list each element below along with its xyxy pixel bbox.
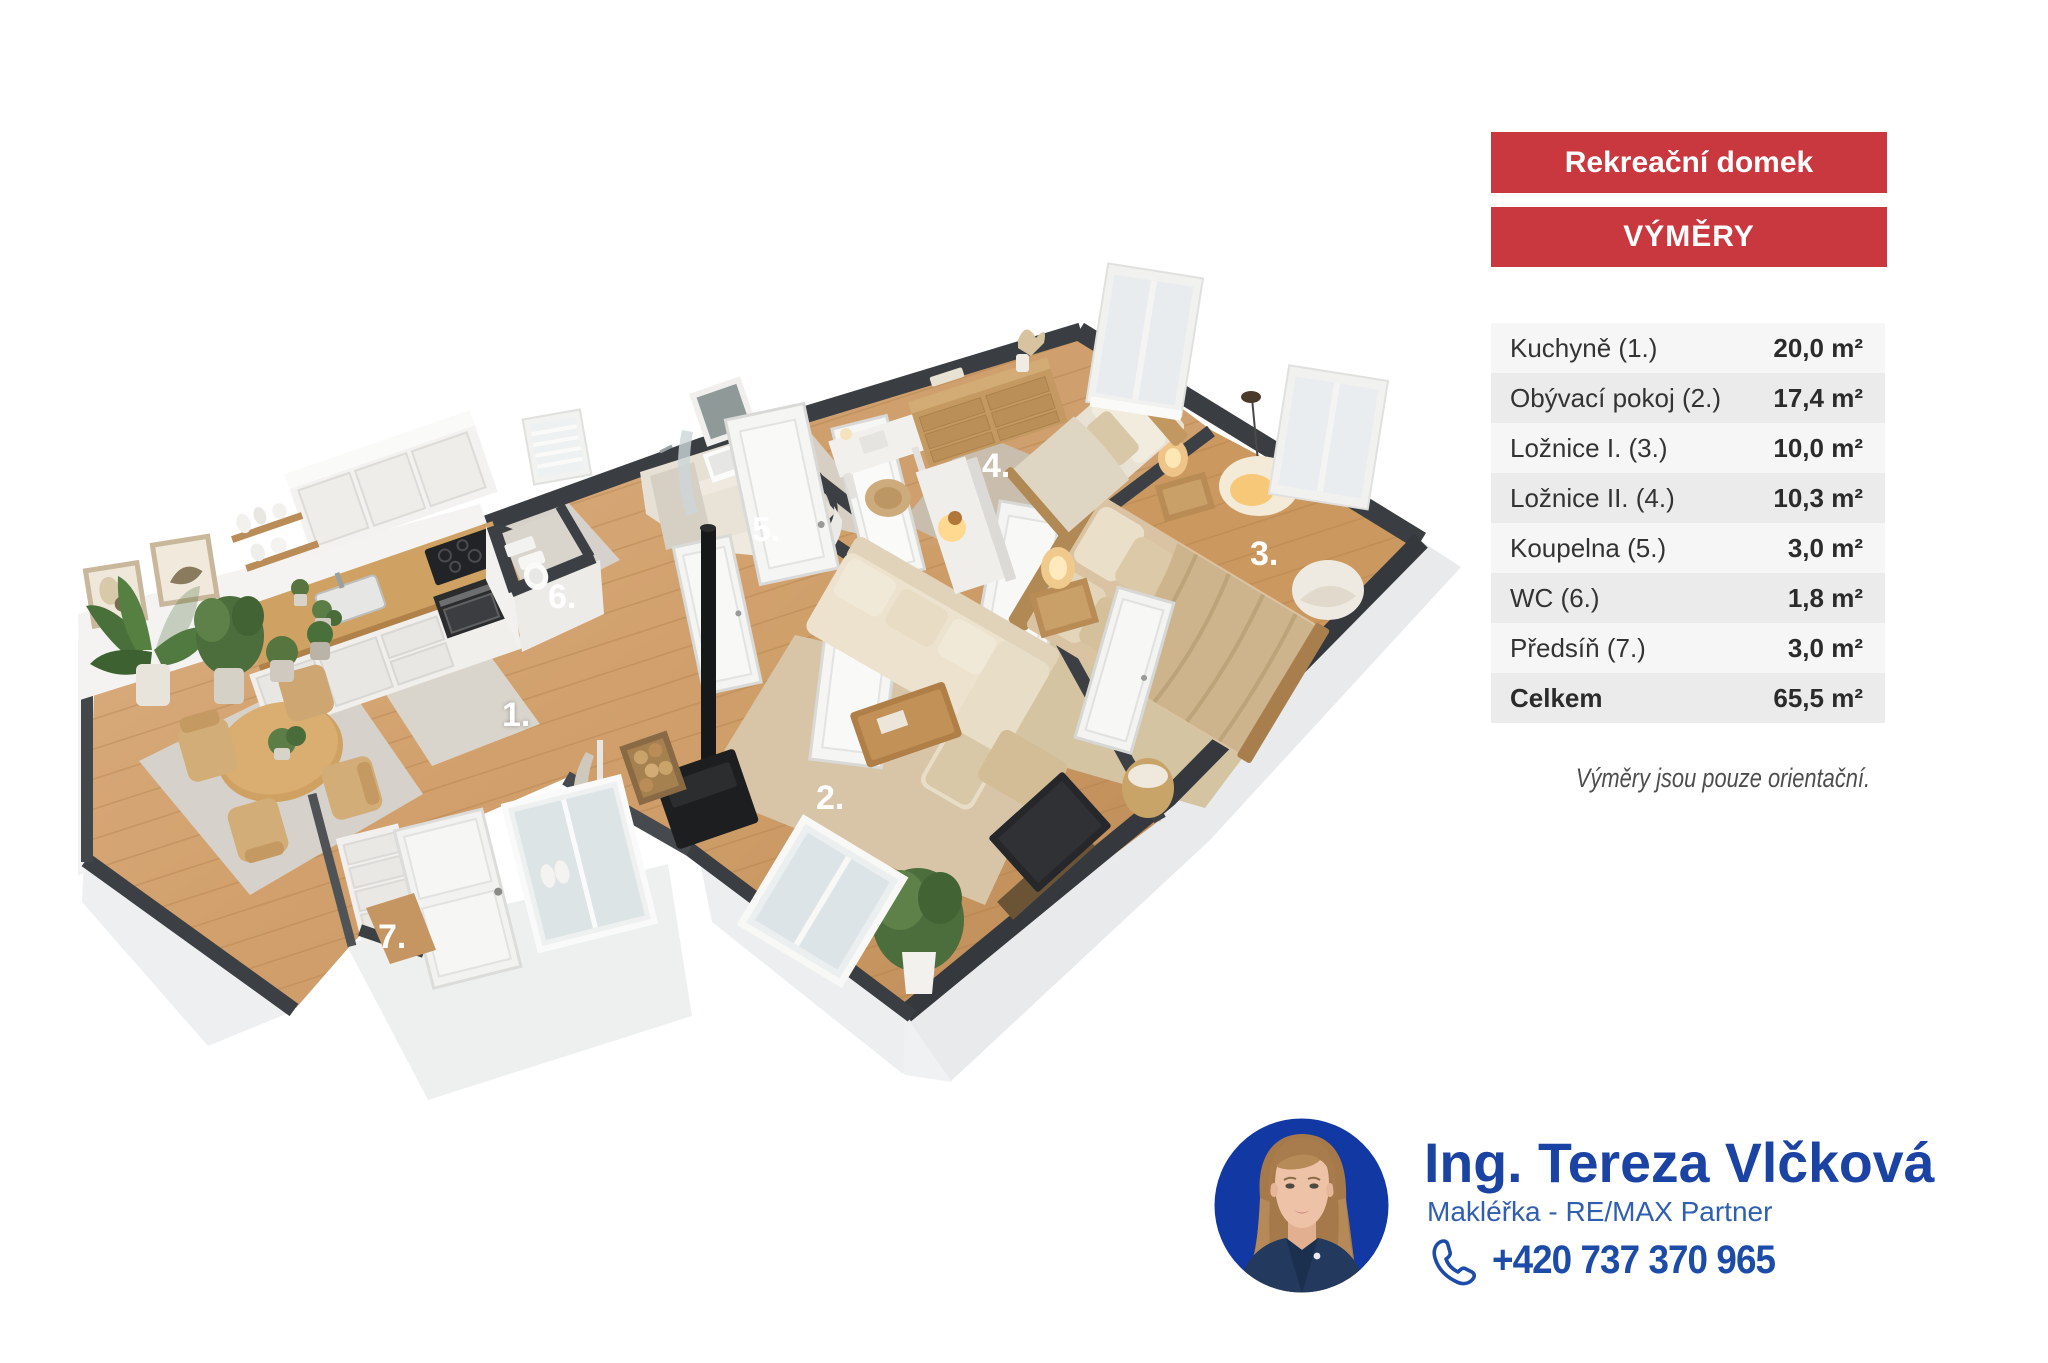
- svg-text:3.: 3.: [1250, 535, 1278, 573]
- svg-text:7.: 7.: [378, 918, 406, 956]
- svg-text:6.: 6.: [548, 578, 576, 616]
- svg-text:4.: 4.: [982, 447, 1010, 485]
- svg-text:1.: 1.: [502, 696, 530, 734]
- svg-text:5.: 5.: [752, 511, 780, 549]
- svg-text:2.: 2.: [816, 779, 844, 817]
